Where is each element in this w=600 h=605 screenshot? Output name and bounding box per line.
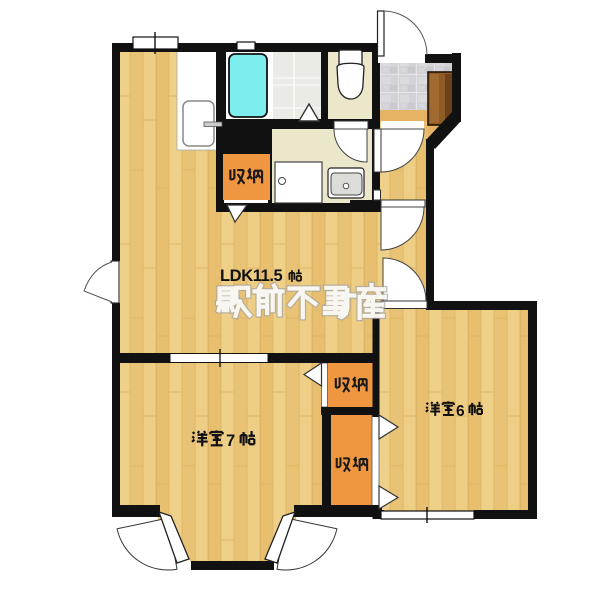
svg-text:LDK11.5: LDK11.5 [220, 267, 283, 285]
svg-text:7: 7 [226, 432, 235, 450]
svg-text:6: 6 [456, 403, 465, 420]
